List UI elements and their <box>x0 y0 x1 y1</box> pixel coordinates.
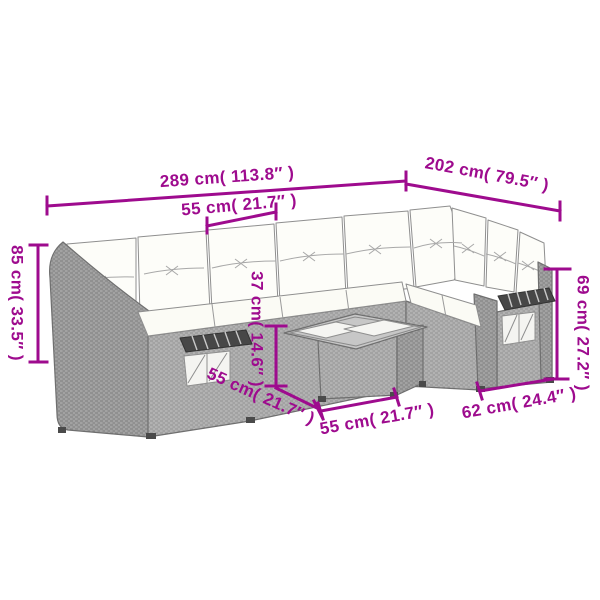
right-back-edge <box>538 262 552 382</box>
dim-label-seat-height: 37 cm( 14.6″ ) <box>249 271 266 387</box>
back-cushion <box>138 231 210 317</box>
dim-line-back-height <box>30 245 47 362</box>
right-armrest-column <box>474 294 497 389</box>
dim-label-back-height: 85 cm( 33.5″ ) <box>9 245 26 361</box>
dim-label-arm-height: 69 cm( 27.2″ ) <box>575 275 592 391</box>
back-cushion <box>486 220 518 292</box>
product-dimension-diagram: 289 cm( 113.8″ ) 202 cm( 79.5″ ) 55 cm( … <box>0 0 600 600</box>
sofa-line-art <box>0 0 600 600</box>
